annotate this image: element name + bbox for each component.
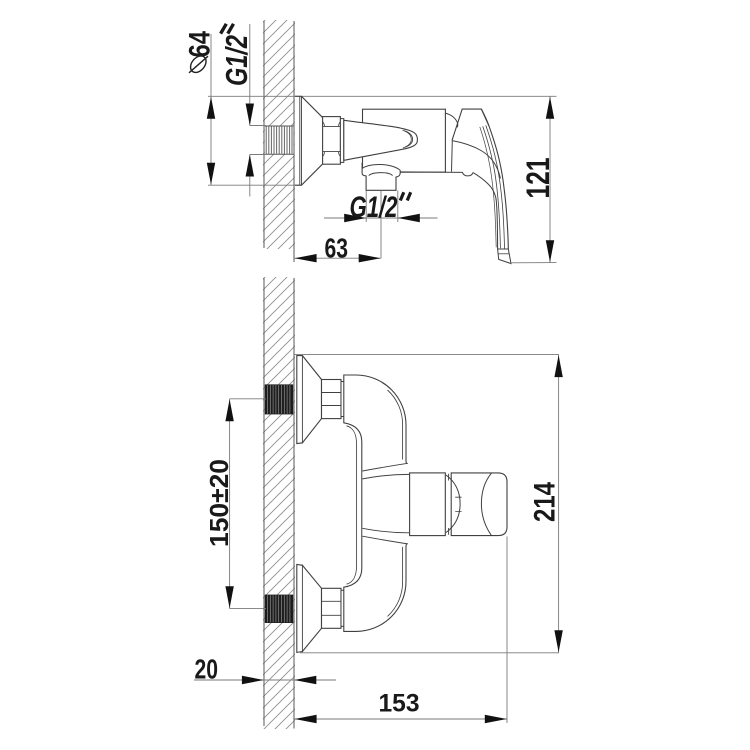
svg-text:153: 153 <box>379 690 420 718</box>
svg-text:G1/2: G1/2 <box>219 35 254 86</box>
svg-text:121: 121 <box>520 158 556 199</box>
svg-text:64: 64 <box>184 31 217 58</box>
svg-text:G1/2: G1/2 <box>350 191 398 224</box>
svg-text:214: 214 <box>529 482 562 522</box>
svg-text:150±20: 150±20 <box>204 459 234 547</box>
svg-text:20: 20 <box>195 654 219 685</box>
svg-text:63: 63 <box>325 233 349 264</box>
